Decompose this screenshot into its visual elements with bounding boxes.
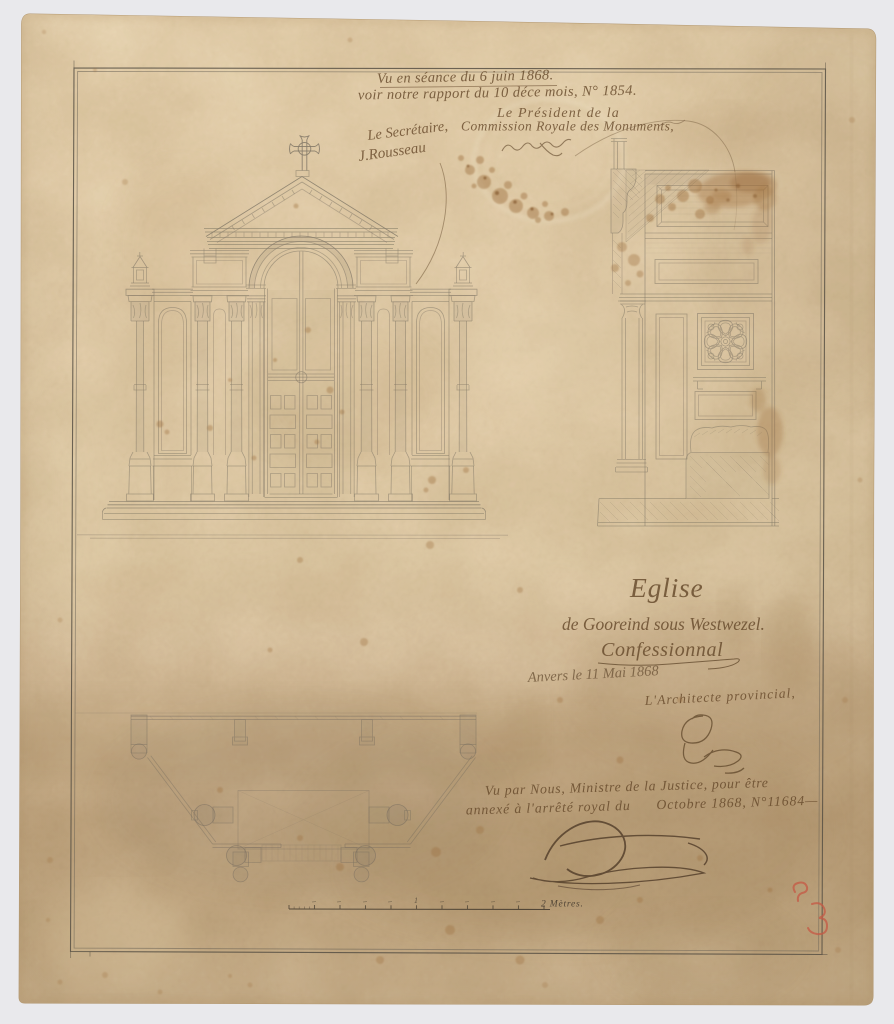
svg-text:1: 1 xyxy=(414,896,418,905)
svg-text:Eglise: Eglise xyxy=(629,572,704,603)
svg-text:de Gooreind sous Westwezel.: de Gooreind sous Westwezel. xyxy=(562,614,765,634)
svg-text:2 Mètres.: 2 Mètres. xyxy=(541,900,584,910)
svg-text:Confessionnal: Confessionnal xyxy=(601,639,723,661)
svg-text:Commission Royale des Monument: Commission Royale des Monuments, xyxy=(461,119,674,134)
